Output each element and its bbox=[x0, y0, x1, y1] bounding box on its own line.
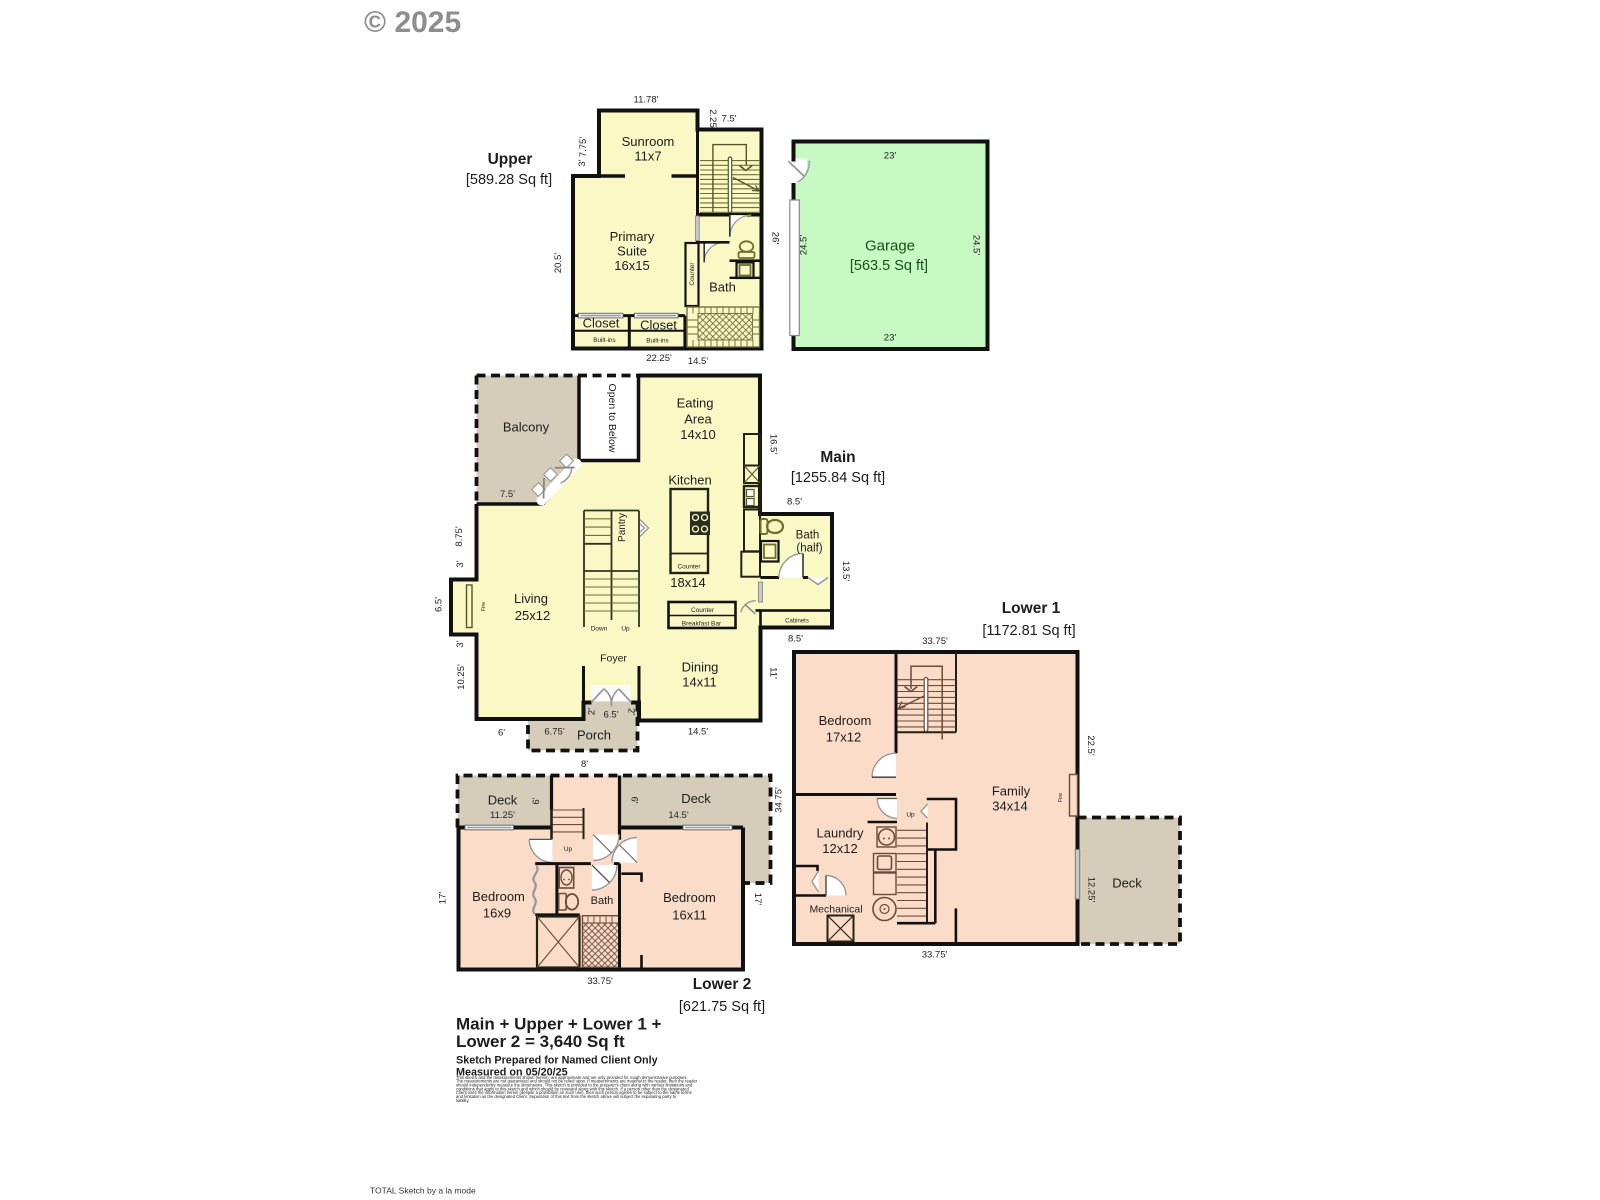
svg-text:3': 3' bbox=[455, 640, 466, 647]
svg-text:Porch: Porch bbox=[577, 728, 611, 743]
svg-text:3': 3' bbox=[455, 560, 466, 567]
svg-text:12.25': 12.25' bbox=[1086, 877, 1097, 903]
svg-text:Deck: Deck bbox=[488, 793, 518, 808]
svg-text:Down: Down bbox=[591, 626, 608, 633]
svg-text:Lower 2: Lower 2 bbox=[693, 976, 752, 993]
svg-text:6': 6' bbox=[531, 797, 542, 804]
svg-text:34x14: 34x14 bbox=[992, 799, 1027, 814]
svg-text:Up: Up bbox=[621, 626, 630, 633]
svg-text:Breakfast Bar: Breakfast Bar bbox=[682, 621, 722, 628]
svg-text:Fire: Fire bbox=[481, 602, 487, 611]
svg-text:7.5': 7.5' bbox=[500, 489, 515, 500]
svg-text:33.75': 33.75' bbox=[587, 976, 613, 987]
svg-text:16x15: 16x15 bbox=[614, 258, 649, 273]
svg-text:Main: Main bbox=[820, 449, 855, 466]
svg-text:and limitation as the designat: and limitation as the designated Client.… bbox=[456, 1094, 677, 1099]
svg-text:34.75': 34.75' bbox=[774, 787, 785, 813]
svg-text:6.75': 6.75' bbox=[544, 727, 564, 738]
svg-text:Closet: Closet bbox=[583, 316, 620, 331]
svg-text:Garage: Garage bbox=[865, 238, 915, 255]
svg-text:Area: Area bbox=[684, 412, 712, 427]
svg-text:© 2025: © 2025 bbox=[364, 6, 461, 39]
svg-text:2.25: 2.25 bbox=[707, 109, 718, 128]
svg-text:33.75': 33.75' bbox=[922, 636, 948, 647]
svg-text:3': 3' bbox=[577, 159, 588, 166]
svg-text:Counter: Counter bbox=[689, 262, 696, 286]
svg-text:11.78': 11.78' bbox=[634, 95, 659, 106]
svg-text:Suite: Suite bbox=[617, 244, 647, 259]
svg-text:2': 2' bbox=[626, 708, 637, 715]
svg-text:[621.75 Sq ft]: [621.75 Sq ft] bbox=[679, 999, 765, 1015]
svg-text:14.5': 14.5' bbox=[668, 810, 688, 821]
svg-text:8': 8' bbox=[581, 759, 588, 770]
svg-text:12x12: 12x12 bbox=[822, 841, 857, 856]
svg-text:[1172.81 Sq ft]: [1172.81 Sq ft] bbox=[982, 623, 1075, 639]
svg-text:Eating: Eating bbox=[677, 396, 714, 411]
svg-text:Upper: Upper bbox=[488, 151, 533, 168]
svg-text:Up: Up bbox=[906, 812, 915, 819]
svg-text:TOTAL Sketch by a la mode: TOTAL Sketch by a la mode bbox=[370, 1186, 476, 1196]
svg-text:14x10: 14x10 bbox=[680, 427, 715, 442]
svg-text:2': 2' bbox=[587, 708, 598, 715]
svg-text:13.5': 13.5' bbox=[840, 561, 851, 581]
svg-text:Built-ins: Built-ins bbox=[646, 338, 668, 345]
svg-text:Deck: Deck bbox=[681, 791, 711, 806]
svg-text:[563.5 Sq ft]: [563.5 Sq ft] bbox=[850, 258, 928, 274]
svg-text:[589.28 Sq ft]: [589.28 Sq ft] bbox=[466, 172, 552, 188]
svg-text:11': 11' bbox=[768, 667, 779, 679]
svg-text:16x11: 16x11 bbox=[672, 908, 706, 923]
svg-text:22.5': 22.5' bbox=[1085, 735, 1096, 755]
svg-text:11x7: 11x7 bbox=[634, 149, 661, 164]
svg-text:Mechanical: Mechanical bbox=[809, 904, 862, 916]
svg-text:Open to Below: Open to Below bbox=[606, 384, 618, 453]
svg-text:Sunroom: Sunroom bbox=[622, 134, 675, 149]
svg-text:Fire: Fire bbox=[1058, 793, 1064, 802]
svg-text:24.5': 24.5' bbox=[971, 235, 982, 255]
svg-text:24.5': 24.5' bbox=[799, 235, 810, 255]
svg-text:Laundry: Laundry bbox=[817, 826, 864, 841]
svg-text:Pantry: Pantry bbox=[617, 513, 628, 542]
svg-text:18x14: 18x14 bbox=[670, 575, 705, 590]
svg-text:16.5': 16.5' bbox=[768, 434, 779, 454]
svg-text:23': 23' bbox=[884, 333, 897, 344]
svg-text:22.25': 22.25' bbox=[646, 353, 672, 364]
svg-text:20.5': 20.5' bbox=[553, 253, 564, 273]
svg-text:8.75': 8.75' bbox=[454, 526, 465, 546]
svg-text:Bath: Bath bbox=[709, 280, 736, 295]
svg-text:Cabinets: Cabinets bbox=[785, 619, 809, 625]
svg-text:Closet: Closet bbox=[640, 318, 677, 333]
svg-text:6': 6' bbox=[498, 728, 505, 739]
svg-text:Main + Upper + Lower 1 +: Main + Upper + Lower 1 + bbox=[456, 1015, 662, 1034]
svg-text:Built-ins: Built-ins bbox=[593, 337, 615, 344]
svg-text:Living: Living bbox=[514, 591, 548, 606]
svg-text:Family: Family bbox=[992, 784, 1031, 799]
svg-text:33.75': 33.75' bbox=[922, 950, 948, 961]
svg-text:17': 17' bbox=[438, 892, 449, 905]
svg-text:Bedroom: Bedroom bbox=[819, 713, 872, 728]
svg-text:6.5': 6.5' bbox=[434, 597, 445, 612]
svg-text:7.75': 7.75' bbox=[578, 137, 589, 157]
svg-text:Deck: Deck bbox=[1112, 876, 1142, 891]
svg-text:Counter: Counter bbox=[691, 607, 715, 614]
svg-text:6.5': 6.5' bbox=[603, 710, 618, 721]
svg-text:Bath: Bath bbox=[796, 530, 820, 542]
svg-text:Primary: Primary bbox=[610, 229, 655, 244]
svg-text:(half): (half) bbox=[796, 543, 822, 555]
svg-text:Counter: Counter bbox=[677, 564, 701, 571]
svg-text:Dining: Dining bbox=[682, 660, 719, 675]
svg-text:14.5': 14.5' bbox=[688, 727, 708, 738]
svg-text:Balcony: Balcony bbox=[503, 420, 550, 435]
svg-text:17x12: 17x12 bbox=[826, 730, 861, 745]
svg-text:17': 17' bbox=[752, 893, 763, 906]
svg-text:Bedroom: Bedroom bbox=[472, 889, 525, 904]
svg-text:[1255.84 Sq ft]: [1255.84 Sq ft] bbox=[791, 470, 885, 486]
svg-text:Bath: Bath bbox=[591, 895, 614, 907]
svg-text:8.5': 8.5' bbox=[788, 634, 803, 645]
svg-text:8.5': 8.5' bbox=[787, 497, 802, 508]
svg-text:Up: Up bbox=[564, 846, 573, 853]
svg-text:Sketch Prepared for Named Clie: Sketch Prepared for Named Client Only bbox=[456, 1055, 658, 1067]
svg-text:23': 23' bbox=[884, 151, 897, 162]
svg-text:liability.: liability. bbox=[456, 1098, 469, 1103]
svg-text:11.25': 11.25' bbox=[490, 810, 515, 821]
svg-text:14.5': 14.5' bbox=[688, 356, 708, 367]
svg-text:Kitchen: Kitchen bbox=[668, 473, 711, 488]
svg-text:Bedroom: Bedroom bbox=[663, 890, 716, 905]
svg-text:10.25': 10.25' bbox=[456, 664, 467, 690]
svg-text:Foyer: Foyer bbox=[600, 653, 627, 665]
svg-text:Lower 2 = 3,640 Sq ft: Lower 2 = 3,640 Sq ft bbox=[456, 1032, 625, 1051]
svg-text:7.5': 7.5' bbox=[721, 114, 736, 125]
svg-text:26': 26' bbox=[770, 232, 781, 245]
svg-text:16x9: 16x9 bbox=[483, 906, 511, 921]
svg-text:14x11: 14x11 bbox=[682, 675, 716, 690]
svg-text:25x12: 25x12 bbox=[515, 608, 550, 623]
svg-text:Lower 1: Lower 1 bbox=[1002, 600, 1061, 617]
svg-text:6': 6' bbox=[629, 796, 640, 803]
